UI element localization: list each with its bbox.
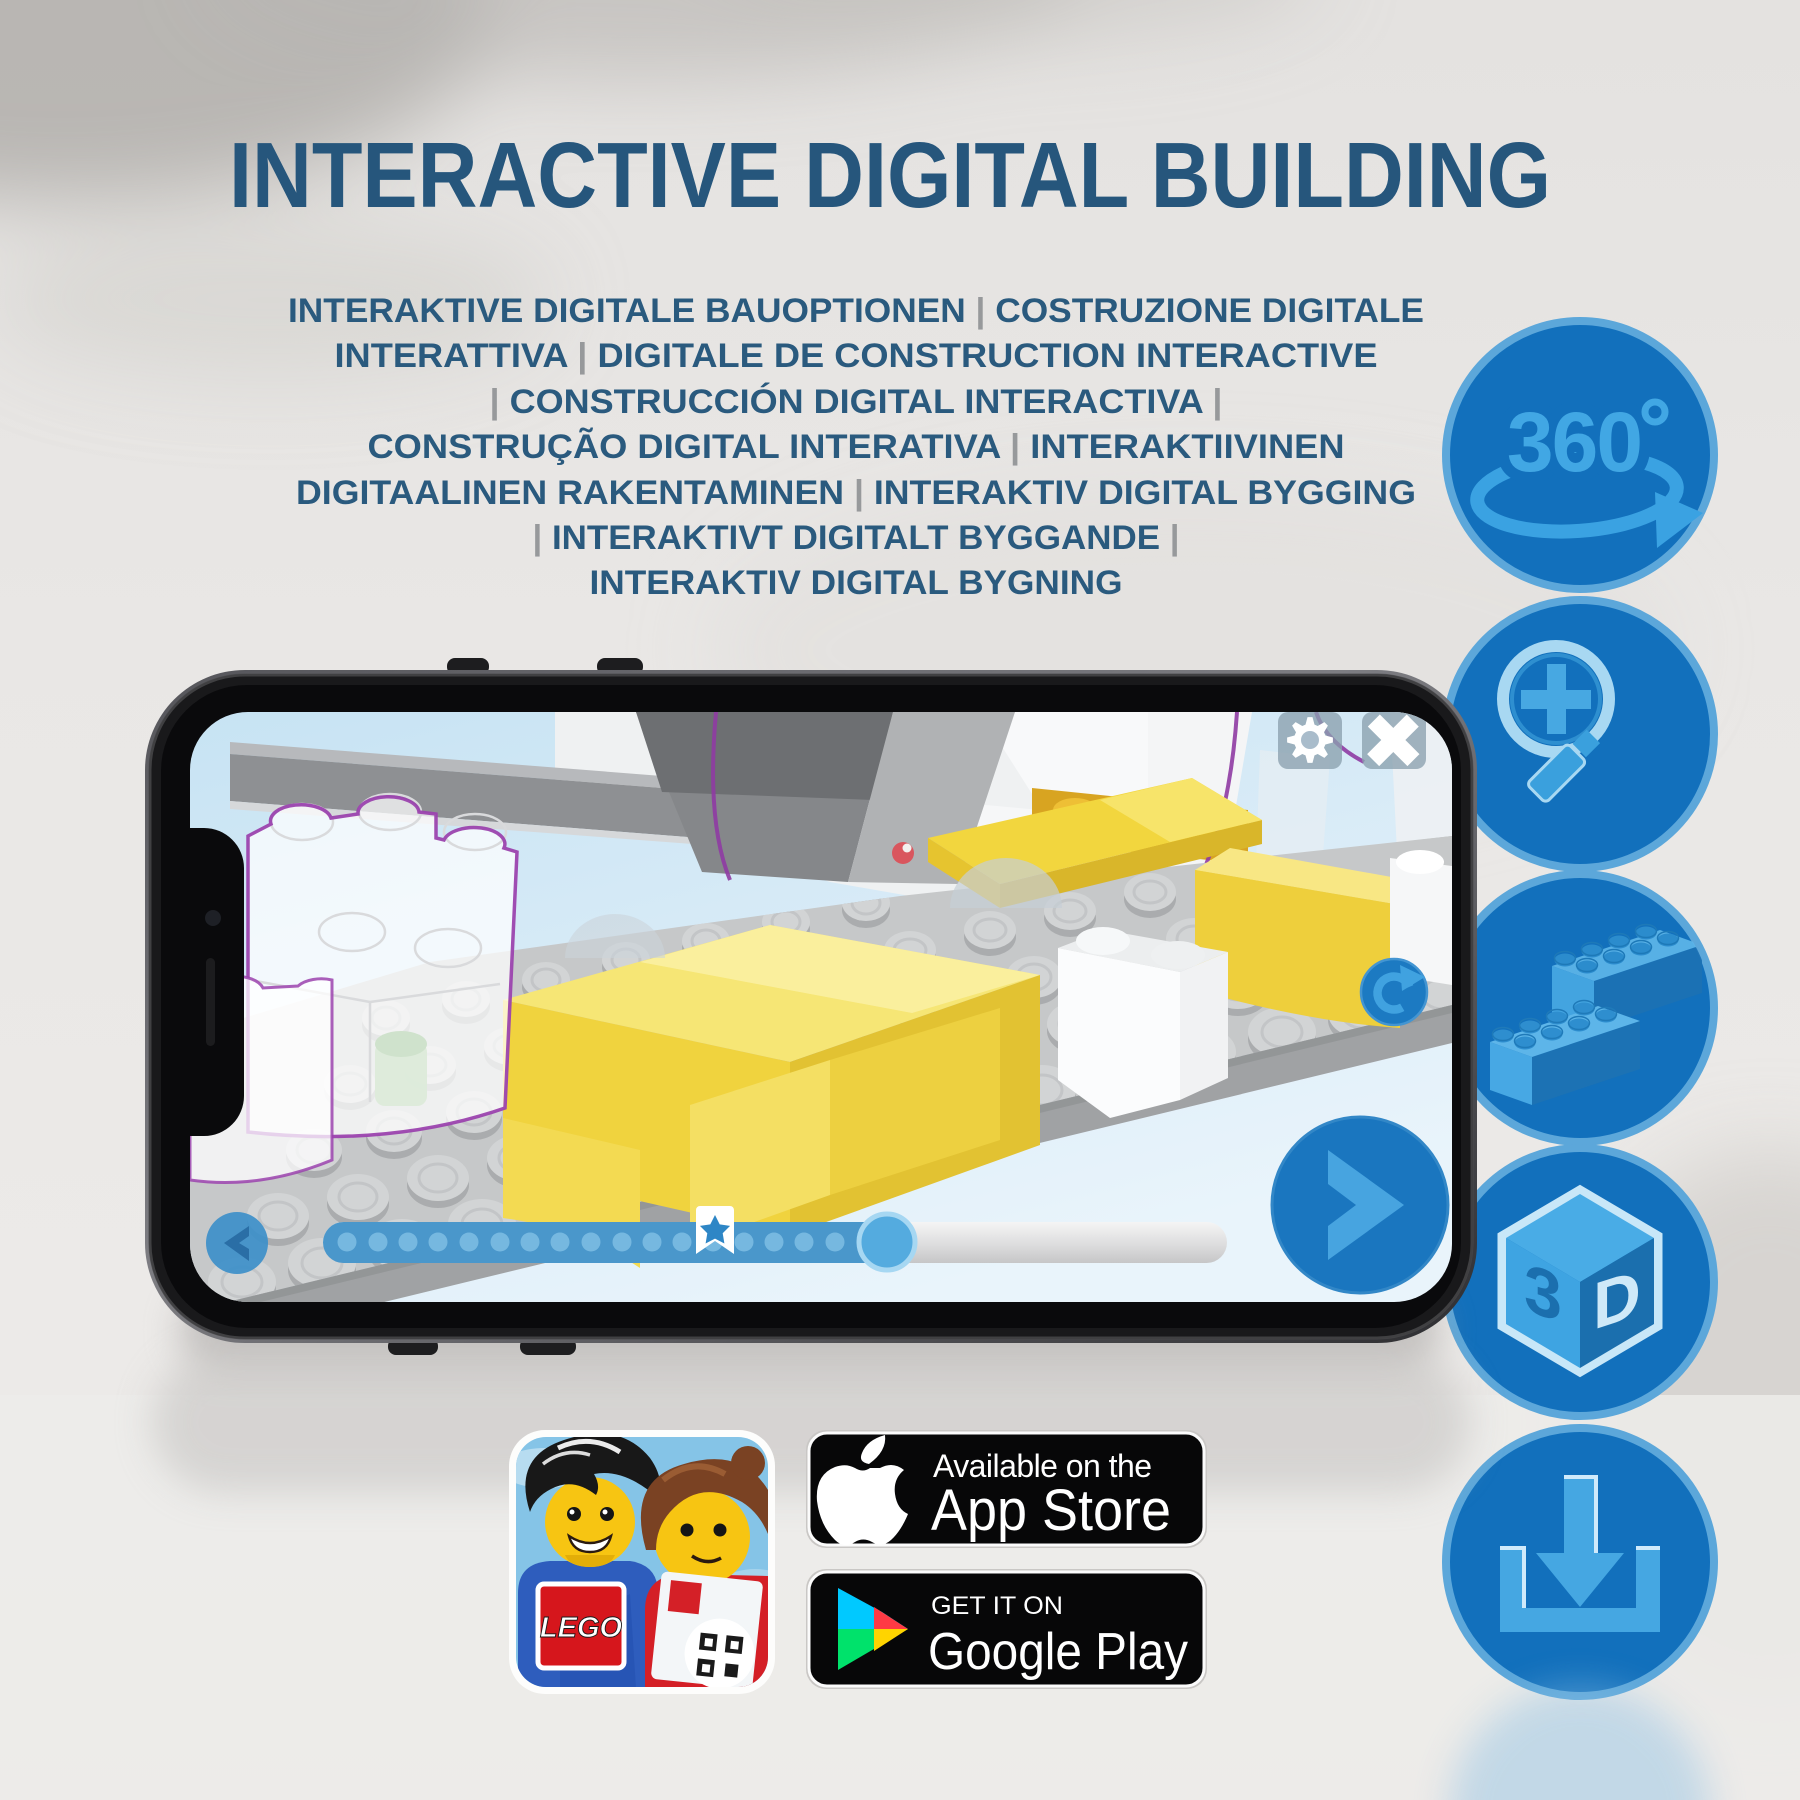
svg-text:App Store: App Store — [931, 1478, 1171, 1543]
svg-text:LEGO: LEGO — [540, 1612, 623, 1644]
svg-text:| INTERAKTIVT DIGITALT BYGGAND: | INTERAKTIVT DIGITALT BYGGANDE | — [533, 519, 1180, 557]
svg-text:360: 360 — [1507, 395, 1641, 489]
svg-text:Google Play: Google Play — [928, 1623, 1188, 1681]
svg-text:| CONSTRUCCIÓN DIGITAL INTERAC: | CONSTRUCCIÓN DIGITAL INTERACTIVA | — [490, 383, 1223, 421]
svg-text:INTERAKTIVE DIGITALE BAUOPTION: INTERAKTIVE DIGITALE BAUOPTIONEN | COSTR… — [288, 292, 1424, 330]
svg-text:GET IT ON: GET IT ON — [931, 1592, 1063, 1620]
svg-text:3: 3 — [1524, 1248, 1562, 1336]
svg-text:DIGITAALINEN RAKENTAMINEN | IN: DIGITAALINEN RAKENTAMINEN | INTERAKTIV D… — [296, 474, 1416, 512]
svg-text:D: D — [1593, 1256, 1641, 1345]
svg-text:INTERACTIVE DIGITAL BUILDING: INTERACTIVE DIGITAL BUILDING — [229, 123, 1551, 227]
svg-text:INTERATTIVA | DIGITALE DE CONS: INTERATTIVA | DIGITALE DE CONSTRUCTION I… — [335, 337, 1378, 375]
svg-text:CONSTRUÇÃO DIGITAL INTERATIVA: CONSTRUÇÃO DIGITAL INTERATIVA | INTERAKT… — [368, 428, 1345, 466]
svg-text:INTERAKTIV DIGITAL BYGNING: INTERAKTIV DIGITAL BYGNING — [590, 564, 1123, 602]
